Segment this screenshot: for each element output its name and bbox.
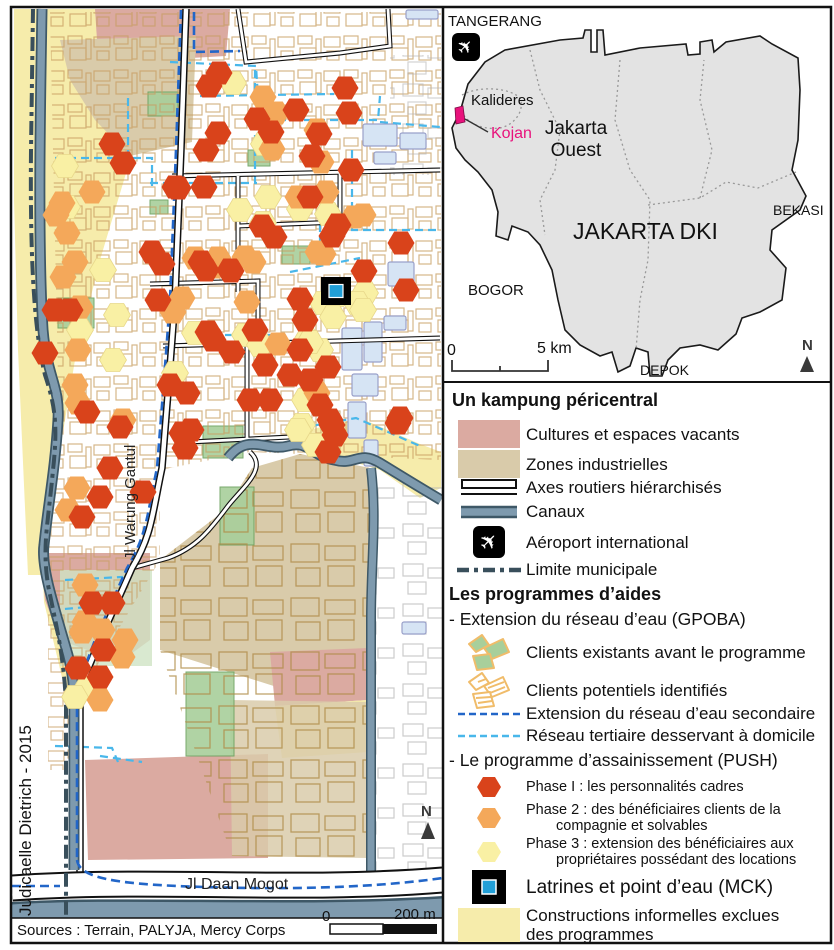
inset-scalebar-zero: 0 [447,342,456,360]
airport-icon: ✈ [452,33,480,61]
legend-item-mck: Latrines et point d’eau (MCK) [452,870,832,904]
inset-label-tangerang: TANGERANG [448,13,542,30]
road-label-warung-gantul: Jl Warung Gantul [122,445,139,560]
existing-clients-icon [466,632,512,672]
legend-item-industrielles: Zones industrielles [452,450,832,478]
phase2-hexagon-icon [476,807,502,829]
figure: Judicaelle Dietrich - 2015 Jl Warung Gan… [0,0,834,950]
legend-section2-title: Les programmes d’aides [449,584,661,605]
inset-map [444,8,830,382]
legend-item-phase1: Phase I : les personnalités cadres [452,776,832,798]
legend-item-informal: Constructions informelles excluesdes pro… [452,906,832,944]
inset-label-bekasi: BEKASI [773,202,824,218]
main-map [12,8,443,918]
industrielles-swatch [458,450,520,478]
sources-text: Sources : Terrain, PALYJA, Mercy Corps [17,922,285,939]
bottom-canal [12,908,443,914]
legend-push-title: - Le programme d’assainissement (PUSH) [449,750,778,771]
mck-marker [321,277,351,305]
legend-item-clients-existants: Clients existants avant le programme [452,632,832,672]
kojan-area [455,106,465,124]
legend-item-axes: Axes routiers hiérarchisés [452,478,832,497]
cultures-swatch [458,420,520,448]
road-label-daan-mogot: Jl Daan Mogot [185,876,288,894]
legend-item-canaux: Canaux [452,502,832,521]
mck-icon [472,870,506,904]
legend-section1-title: Un kampung péricentral [452,390,658,411]
legend-item-reseau-secondaire: Extension du réseau d’eau secondaire [452,704,832,723]
inset-label-bogor: BOGOR [468,282,524,299]
legend-item-aeroport: ✈ Aéroport international [452,526,832,558]
map-scalebar-end: 200 m [394,906,436,923]
inset-label-kojan: Kojan [491,125,532,143]
tertiary-network-symbol [458,732,520,740]
map-north-label: N [421,803,432,820]
airport-icon: ✈ [473,526,505,558]
inset-label-jakarta-ouest: Jakarta Ouest [533,118,619,162]
secondary-network-symbol [458,710,520,718]
inset-north-label: N [802,337,813,354]
municipal-limit-symbol [457,566,521,574]
map-scalebar-zero: 0 [322,908,330,925]
legend-item-cultures: Cultures et espaces vacants [452,420,832,448]
canal-symbol [461,505,517,519]
inset-label-kalideres: Kalideres [471,92,534,109]
phase3-hexagon-icon [476,841,502,863]
informal-swatch [458,908,520,942]
author-credit: Judicaelle Dietrich - 2015 [16,725,36,916]
inset-label-depok: DEPOK [640,362,689,378]
inset-label-jakarta-dki: JAKARTA DKI [573,218,718,245]
legend-gpoba-title: - Extension du réseau d’eau (GPOBA) [449,609,746,630]
inset-scalebar-end: 5 km [537,340,572,358]
legend-item-phase3: Phase 3 : extension des bénéficiaires au… [452,836,832,868]
legend-item-phase2: Phase 2 : des bénéficiaires clients de l… [452,802,832,834]
phase1-hexagon-icon [476,776,502,798]
legend-item-reseau-tertiaire: Réseau tertiaire desservant à domicile [452,726,832,745]
road-symbol [461,479,517,497]
legend-item-limite: Limite municipale [452,560,832,579]
